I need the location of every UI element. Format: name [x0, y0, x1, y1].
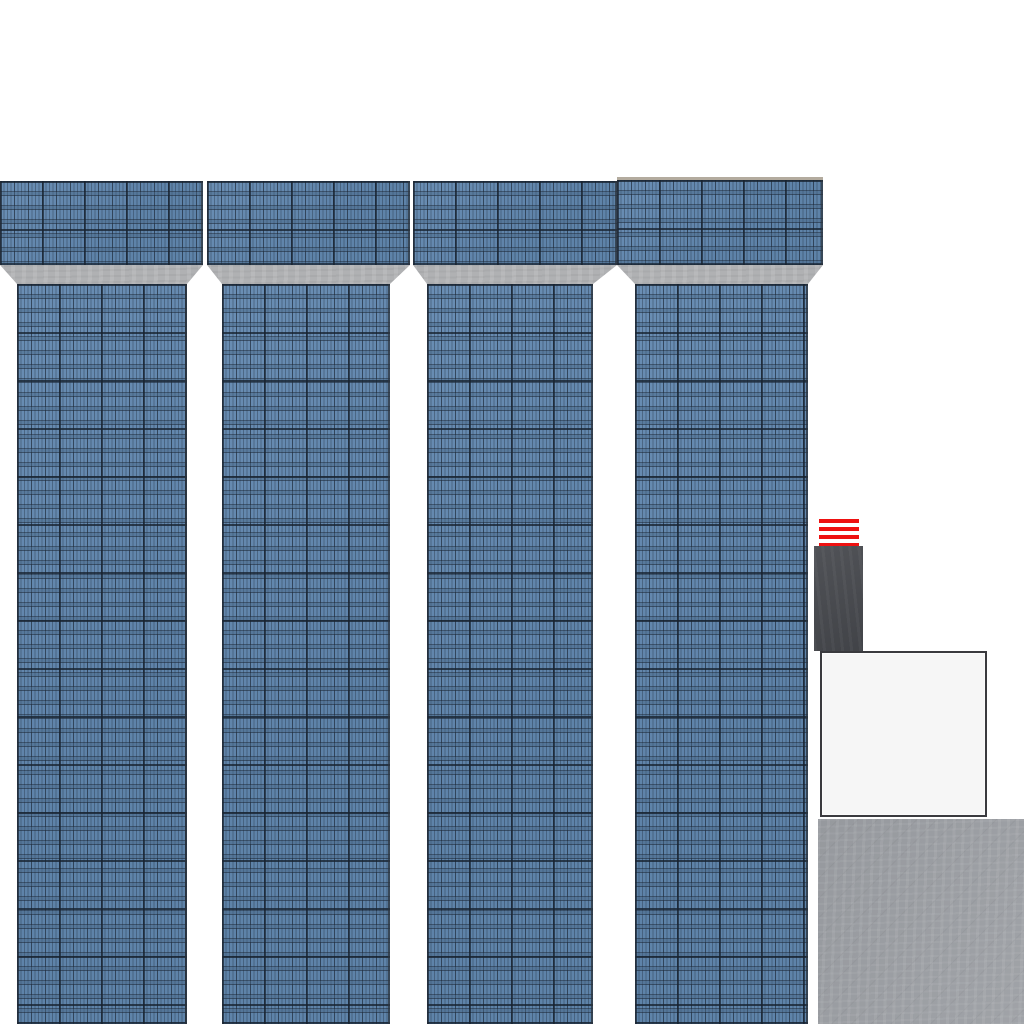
concrete-tile: [818, 819, 1024, 1024]
facade-shaft-4: [635, 284, 808, 1024]
facade-ledge-2: [207, 265, 410, 284]
facade-shaft-2: [222, 284, 390, 1024]
dark-rooftop-block: [814, 546, 863, 651]
facade-cap-1: [0, 181, 203, 265]
facade-cap-3: [413, 181, 617, 265]
facade-shaft-1: [17, 284, 187, 1024]
facade-shaft-3: [427, 284, 593, 1024]
facade-cap-2: [207, 181, 410, 265]
facade-ledge-1: [0, 265, 203, 284]
facade-ledge-4: [617, 265, 823, 284]
red-stripe-marker: [819, 519, 859, 547]
white-panel: [820, 651, 987, 817]
facade-cap-4: [617, 177, 823, 265]
texture-atlas-canvas: [0, 0, 1024, 1024]
facade-ledge-3: [413, 265, 617, 284]
